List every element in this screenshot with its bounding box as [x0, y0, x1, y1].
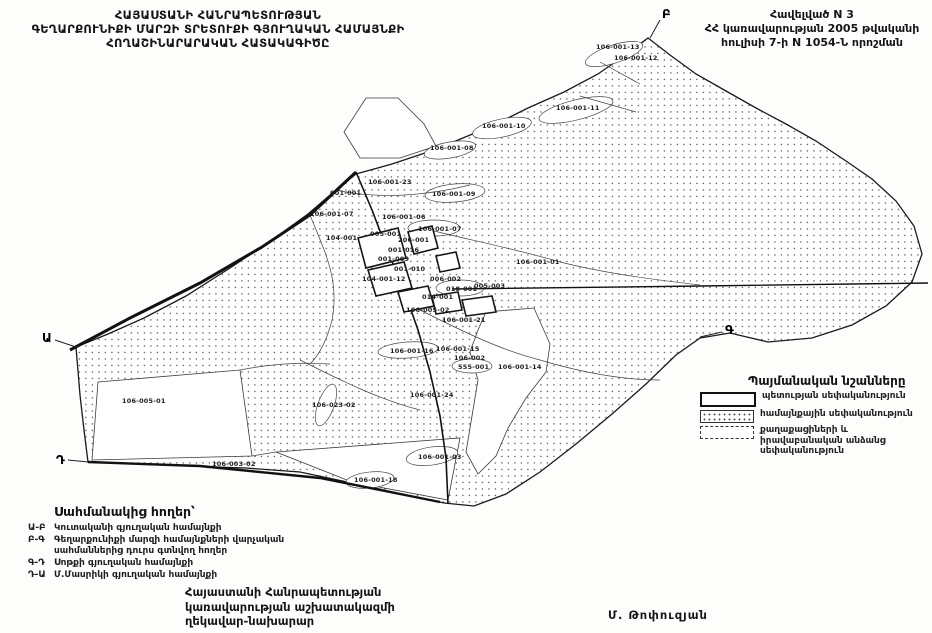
- parcel-label: 106-001-13: [596, 43, 640, 51]
- legend-item-private: քաղաքացիների և իրավաբանական անձանց սեփակ…: [700, 425, 930, 457]
- annex-line-3: հուլիսի 7-ի N 1054-Ն որոշման: [698, 36, 926, 50]
- segment-code: Դ-Ա: [28, 570, 54, 581]
- parcel-label: 104-001: [326, 234, 358, 242]
- segment-code: Բ-Գ: [28, 535, 54, 556]
- legend-item-state: պետության սեփականություն: [700, 391, 930, 407]
- parcel-label: 106-002: [454, 354, 485, 362]
- parcel-label: 206-001: [398, 236, 430, 244]
- signature-line-1: Հայաստանի Հանրապետության: [185, 585, 485, 600]
- parcel-label: 106-001-16: [390, 347, 434, 355]
- parcel-label: 106-001-18: [354, 476, 398, 484]
- signature-line-2: կառավարության աշխատակազմի: [185, 600, 485, 615]
- segment-label: Կուտականի գյուղական համայնքի: [54, 523, 304, 534]
- parcel-label: 001-001: [330, 189, 362, 197]
- parcel-label: 106-001-24: [410, 391, 454, 399]
- parcel-label: 006-002: [430, 275, 461, 283]
- legend-item-label: քաղաքացիների և իրավաբանական անձանց սեփակ…: [760, 425, 928, 457]
- segment-label: Մ.Մասրիկի գյուղական համայնքի: [54, 570, 304, 581]
- bordering-lands-title: Սահմանակից հողեր՝: [54, 504, 328, 519]
- parcel-label: 106-001-12: [614, 54, 658, 62]
- boundary-corner-letter: Բ: [662, 7, 671, 21]
- parcel-label: 001-009: [378, 255, 410, 263]
- parcel-label: 555-001: [458, 363, 490, 371]
- annex-note: Հավելված N 3 ՀՀ կառավարության 2005 թվակա…: [698, 8, 926, 50]
- annex-line-1: Հավելված N 3: [698, 8, 926, 22]
- parcel-label: 106-001-08: [430, 144, 474, 152]
- legend-item-label: համայնքային սեփականություն: [760, 409, 928, 420]
- legend-item-label: պետության սեփականություն: [762, 391, 930, 402]
- private-ownership-swatch: [700, 426, 754, 439]
- bordering-lands: Սահմանակից հողեր՝ Ա-Բ Կուտականի գյուղակա…: [28, 504, 328, 582]
- state-ownership-swatch: [700, 392, 756, 407]
- parcel-label: 018-001: [446, 285, 478, 293]
- segment-label: Գեղարքունիքի մարզի համայնքների վարչական …: [54, 535, 304, 556]
- parcel-label: 106-001-03: [418, 453, 462, 461]
- parcel-label: 005-003: [474, 282, 505, 290]
- parcel-label: 106-001-23: [368, 178, 412, 186]
- map-title: ՀԱՅԱՍՏԱՆԻ ՀԱՆՐԱՊԵՏՈՒԹՅԱՆ ԳԵՂԱՐՔՈՒՆԻՔԻ ՄԱ…: [8, 8, 428, 50]
- legend-item-community: համայնքային սեփականություն: [700, 409, 930, 423]
- boundary-corner-letter: Դ: [56, 453, 65, 467]
- boundary-corner-letter: Գ: [725, 323, 734, 337]
- bordering-lands-item: Ա-Բ Կուտականի գյուղական համայնքի: [28, 523, 328, 534]
- parcel-label: 106-001-01: [516, 258, 560, 266]
- boundary-corner-letter: Ա: [42, 331, 52, 345]
- parcel-label: 104-001-12: [362, 275, 406, 283]
- parcel-label: 106-001-21: [442, 316, 486, 324]
- annex-line-2: ՀՀ կառավարության 2005 թվականի: [698, 22, 926, 36]
- parcel-label: 106-001-06: [382, 213, 426, 221]
- parcel-label: 001-010: [394, 265, 426, 273]
- parcel-label: 106-005-02: [406, 306, 450, 314]
- parcel-label: 106-001-09: [432, 190, 476, 198]
- bordering-lands-item: Դ-Ա Մ.Մասրիկի գյուղական համայնքի: [28, 570, 328, 581]
- title-line-3: ՀՈՂԱՇԻՆԱՐԱՐԱԿԱՆ ՀԱՏԱԿԱԳԻԾԸ: [8, 36, 428, 50]
- title-line-2: ԳԵՂԱՐՔՈՒՆԻՔԻ ՄԱՐԶԻ ՏՐԵՏՈՒՔԻ ԳՅՈՒՂԱԿԱՆ ՀԱ…: [8, 22, 428, 36]
- signature-line-3: ղեկավար-նախարար: [185, 614, 485, 629]
- parcel-label: 005-001: [370, 230, 402, 238]
- parcel-label: 106-005-01: [122, 397, 166, 405]
- title-line-1: ՀԱՅԱՍՏԱՆԻ ՀԱՆՐԱՊԵՏՈՒԹՅԱՆ: [8, 8, 428, 22]
- parcel-label: 106-001-07: [418, 225, 462, 233]
- parcel-label: 001-016: [388, 246, 420, 254]
- parcel-label: 014-001: [422, 293, 454, 301]
- segment-label: Սոթքի գյուղական համայնքի: [54, 558, 304, 569]
- segment-code: Ա-Բ: [28, 523, 54, 534]
- parcel-label: 106-001-15: [436, 345, 480, 353]
- scanned-cadastral-map-page: 106-001-13106-001-12106-001-11106-001-10…: [0, 0, 932, 633]
- parcel-label: 106-001-11: [556, 104, 600, 112]
- community-ownership-swatch: [700, 410, 754, 423]
- legend: Պայմանական նշանները պետության սեփականութ…: [700, 374, 930, 459]
- legend-title: Պայմանական նշանները: [748, 374, 930, 388]
- signer-name: Մ. Թոփուզյան: [608, 608, 708, 622]
- signature-block: Հայաստանի Հանրապետության կառավարության ա…: [185, 585, 485, 629]
- bordering-lands-item: Գ-Դ Սոթքի գյուղական համայնքի: [28, 558, 328, 569]
- segment-code: Գ-Դ: [28, 558, 54, 569]
- parcel-label: 106-001-10: [482, 122, 526, 130]
- parcel-label: 106-001-14: [498, 363, 542, 371]
- bordering-lands-item: Բ-Գ Գեղարքունիքի մարզի համայնքների վարչա…: [28, 535, 328, 556]
- parcel-label: 106-023-02: [312, 401, 356, 409]
- parcel-label: 106-001-07: [310, 210, 354, 218]
- parcel-label: 106-003-02: [212, 460, 256, 468]
